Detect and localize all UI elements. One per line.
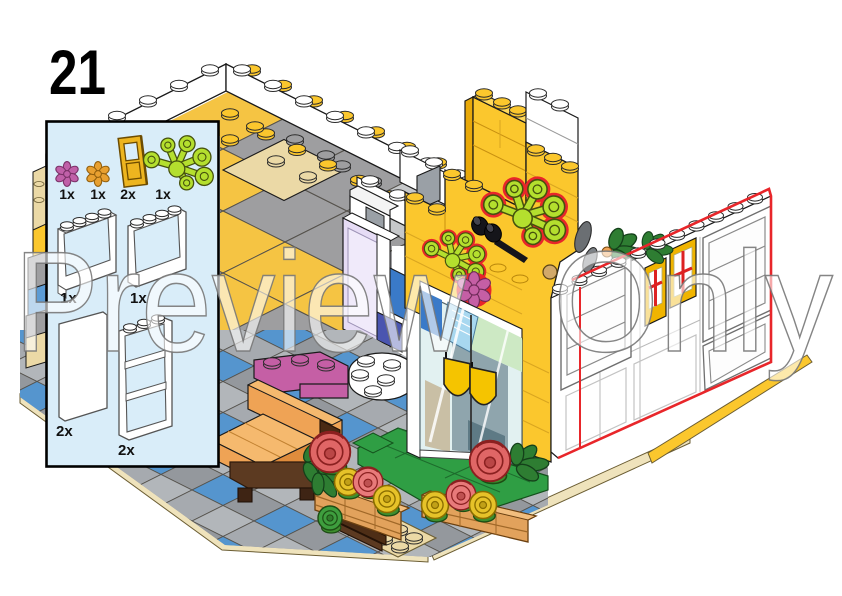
svg-text:1x: 1x (59, 186, 75, 202)
svg-text:1x: 1x (90, 186, 106, 202)
svg-text:Preview: Preview (14, 223, 467, 382)
svg-text:2x: 2x (56, 423, 73, 440)
svg-text:2x: 2x (118, 442, 135, 459)
svg-text:2x: 2x (120, 186, 136, 202)
svg-text:Only: Only (553, 223, 833, 382)
svg-text:21: 21 (49, 38, 106, 108)
svg-text:1x: 1x (155, 186, 171, 202)
